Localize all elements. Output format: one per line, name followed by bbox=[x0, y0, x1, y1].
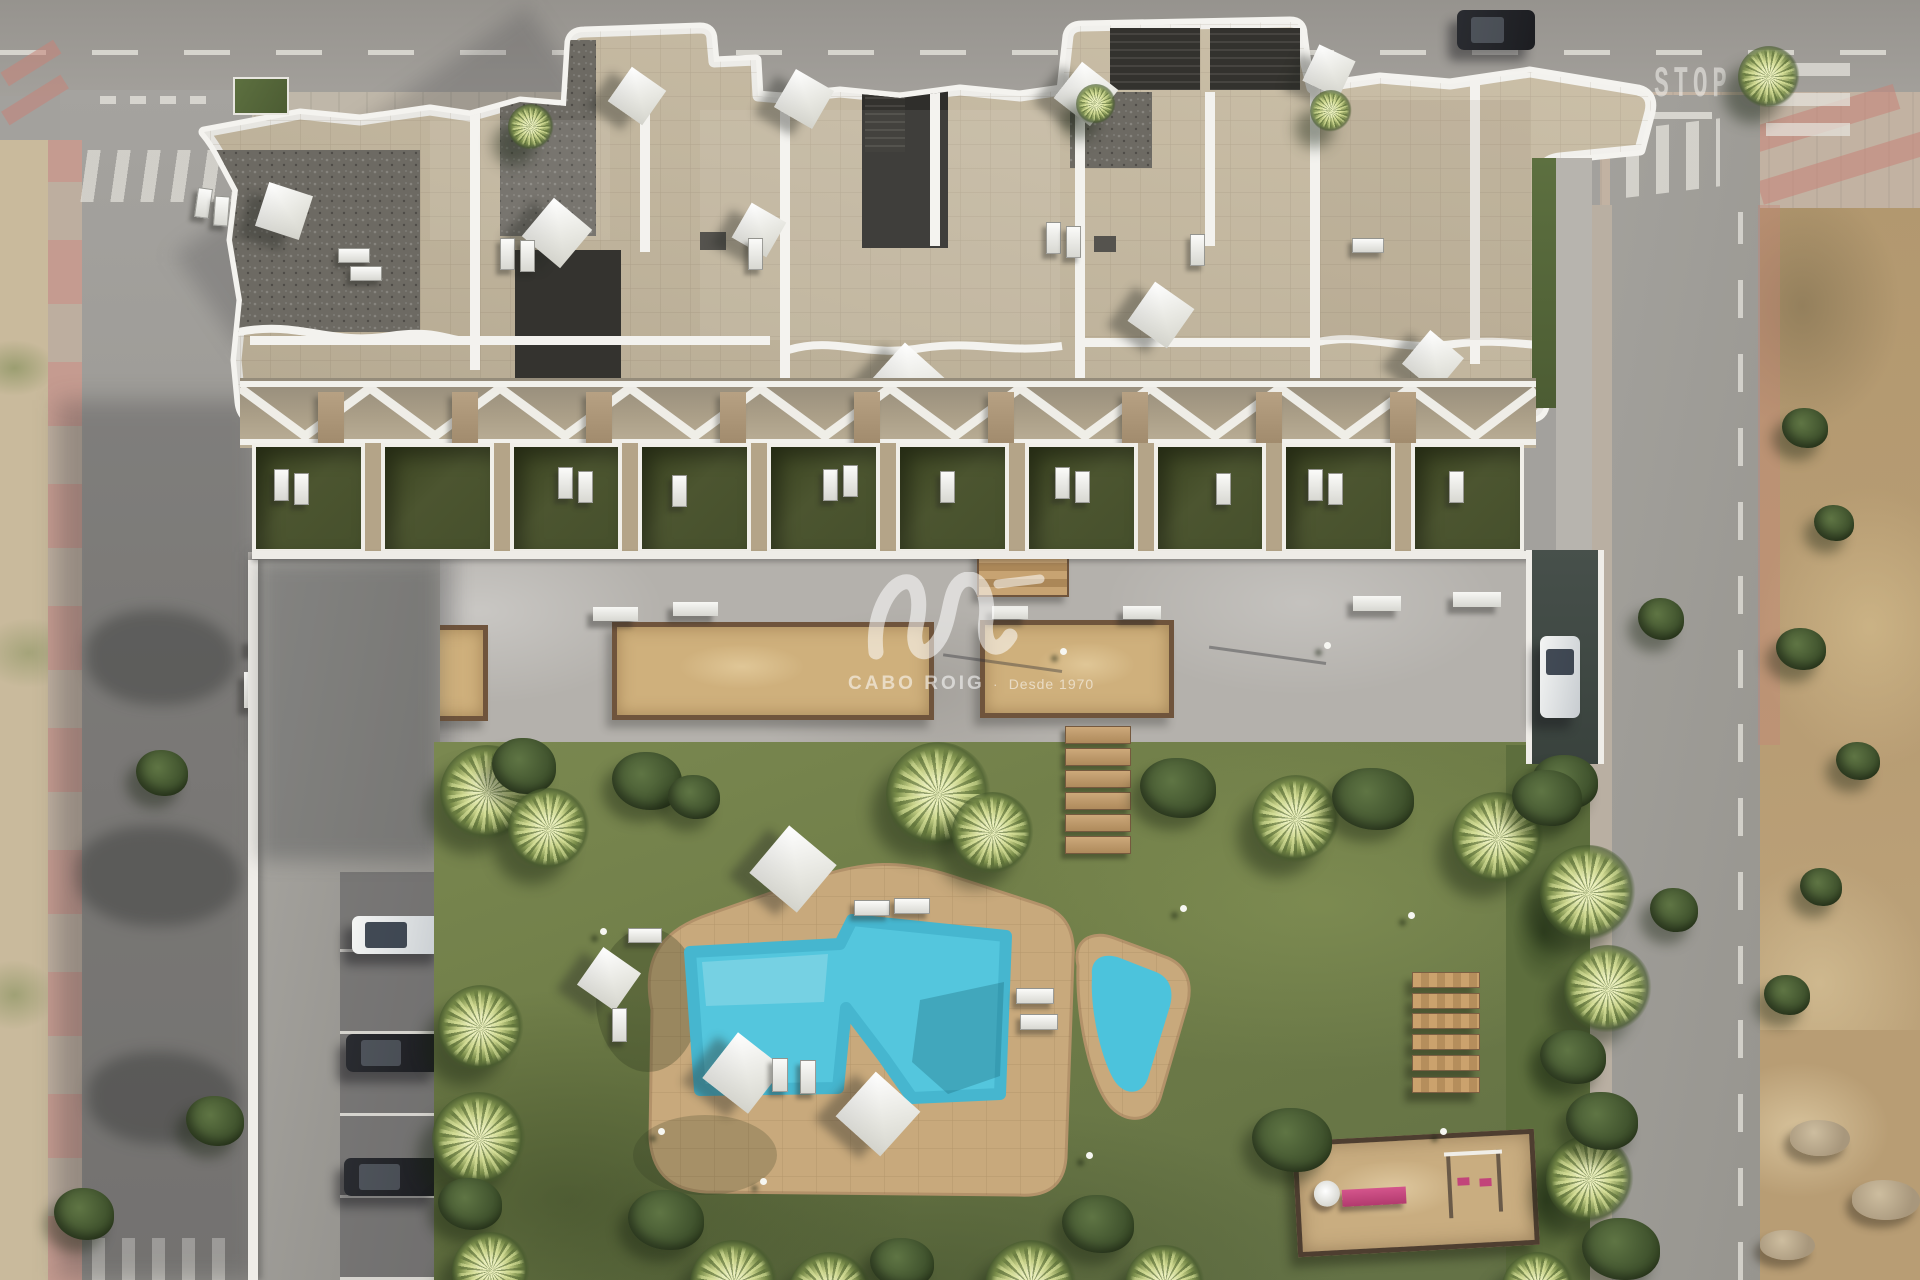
sun-lounger bbox=[772, 1058, 788, 1092]
plaza-bench bbox=[1123, 606, 1161, 619]
playground-slide bbox=[1342, 1187, 1407, 1207]
watermark: CABO ROIG · Desde 1970 bbox=[848, 572, 1098, 704]
shrub bbox=[668, 775, 720, 819]
plaza-bench bbox=[593, 607, 638, 621]
stone-pillar bbox=[318, 392, 344, 446]
building-shadow-on-road bbox=[58, 400, 258, 1280]
windshield bbox=[365, 922, 407, 948]
terrace-garden bbox=[1282, 443, 1395, 553]
watermark-text: CABO ROIG · Desde 1970 bbox=[848, 673, 1098, 695]
rock bbox=[1790, 1120, 1850, 1156]
parking-strip-shadow bbox=[258, 560, 440, 860]
palm-tree bbox=[952, 792, 1034, 874]
lawn-bench bbox=[1412, 1013, 1480, 1029]
plaza-bench bbox=[1353, 596, 1401, 611]
dirt-scrub bbox=[1836, 742, 1880, 780]
turf-strip-right bbox=[1532, 158, 1556, 408]
sun-lounger bbox=[1352, 238, 1384, 253]
road-right-dashed-line bbox=[1738, 212, 1743, 1280]
stone-pillar bbox=[452, 392, 478, 446]
terrace-garden bbox=[510, 443, 623, 553]
sun-lounger bbox=[350, 266, 382, 281]
lawn-bench bbox=[1412, 993, 1480, 1009]
rock bbox=[1852, 1180, 1920, 1220]
shrub bbox=[438, 1178, 502, 1230]
wooden-step bbox=[1065, 814, 1131, 832]
sun-lounger bbox=[1020, 1014, 1058, 1030]
sun-lounger bbox=[628, 928, 662, 943]
bollard-light bbox=[1408, 912, 1415, 919]
stone-pillar bbox=[1122, 392, 1148, 446]
playground-swing-frame bbox=[1446, 1156, 1453, 1218]
sun-lounger bbox=[800, 1060, 816, 1094]
watermark-separator: · bbox=[993, 677, 1000, 692]
roof-pergola-box bbox=[1210, 28, 1300, 90]
shrub bbox=[870, 1238, 934, 1280]
street-palm bbox=[1310, 90, 1352, 132]
parked-car-top-right bbox=[1457, 10, 1535, 50]
sun-lounger bbox=[1190, 234, 1205, 266]
bollard-light bbox=[1086, 1152, 1093, 1159]
concrete-right-of-building bbox=[1556, 158, 1592, 550]
palm-tree bbox=[508, 788, 590, 870]
sun-lounger bbox=[854, 900, 890, 916]
street-tree bbox=[1638, 598, 1684, 640]
terrace-garden bbox=[896, 443, 1009, 553]
street-palm bbox=[1738, 46, 1800, 108]
palm-tree bbox=[438, 985, 524, 1071]
dirt-scrub bbox=[1782, 408, 1828, 448]
street-tree bbox=[1650, 888, 1698, 932]
sun-lounger bbox=[612, 1008, 627, 1042]
wooden-step bbox=[1065, 792, 1131, 810]
rock bbox=[1760, 1230, 1815, 1260]
car-on-ramp bbox=[1540, 636, 1580, 718]
bollard-light bbox=[760, 1178, 767, 1185]
playground-swing-bar bbox=[1444, 1149, 1502, 1156]
sidewalk-pink-strip-right bbox=[1758, 205, 1780, 745]
roof-pergola-box bbox=[1110, 28, 1200, 90]
palm-tree bbox=[1546, 1135, 1634, 1223]
stone-pillar bbox=[586, 392, 612, 446]
sun-lounger bbox=[500, 238, 515, 270]
terrace-garden bbox=[381, 443, 494, 553]
terrace-garden bbox=[1411, 443, 1524, 553]
terrace-garden bbox=[1025, 443, 1138, 553]
terrace-garden bbox=[638, 443, 751, 553]
stone-pillar bbox=[854, 392, 880, 446]
sun-lounger bbox=[1046, 222, 1061, 254]
street-palm bbox=[1076, 84, 1116, 124]
terrace-garden bbox=[1154, 443, 1267, 553]
parked-car-white bbox=[352, 916, 444, 954]
wooden-step bbox=[1065, 748, 1131, 766]
palm-tree bbox=[432, 1092, 526, 1186]
watermark-tagline: Desde 1970 bbox=[1009, 676, 1095, 692]
aerial-site-render: STOP bbox=[0, 0, 1920, 1280]
bollard-light bbox=[1440, 1128, 1447, 1135]
sun-lounger bbox=[1066, 226, 1081, 258]
playground-swing-frame bbox=[1496, 1150, 1503, 1212]
watermark-logo bbox=[848, 572, 1098, 668]
parking-strip-wall bbox=[248, 560, 258, 1280]
palm-tree bbox=[1564, 945, 1652, 1033]
plaza-bench bbox=[673, 602, 718, 616]
parked-car-dark bbox=[344, 1158, 440, 1196]
plaza-bench bbox=[1453, 592, 1501, 607]
windshield bbox=[359, 1164, 399, 1190]
shrub bbox=[492, 738, 556, 794]
street-palm bbox=[508, 104, 554, 150]
playground-spinner bbox=[1313, 1180, 1340, 1207]
dirt-scrub bbox=[1776, 628, 1826, 670]
street-tree bbox=[136, 750, 188, 796]
palm-tree bbox=[1540, 845, 1636, 941]
sun-lounger bbox=[1016, 988, 1054, 1004]
turf-patch bbox=[233, 77, 289, 115]
sun-lounger bbox=[338, 248, 370, 263]
bollard-light bbox=[600, 928, 607, 935]
sidewalk-bush bbox=[186, 1096, 244, 1146]
lawn-bench bbox=[1412, 1055, 1480, 1071]
scrub-ground-left bbox=[0, 140, 48, 1280]
playground-swing-seat bbox=[1479, 1178, 1491, 1187]
lawn-bench bbox=[1412, 972, 1480, 988]
terrace-garden-row bbox=[252, 443, 1524, 553]
stone-pillar bbox=[720, 392, 746, 446]
stone-pillar bbox=[1256, 392, 1282, 446]
terrace-garden bbox=[767, 443, 880, 553]
windshield bbox=[1546, 649, 1574, 675]
sun-lounger bbox=[520, 240, 535, 272]
terrace-garden bbox=[252, 443, 365, 553]
wooden-step bbox=[1065, 726, 1131, 744]
windshield bbox=[1471, 17, 1504, 43]
palm-tree bbox=[1252, 775, 1340, 863]
parked-car-dark bbox=[346, 1034, 440, 1072]
lawn-bench bbox=[1412, 1077, 1480, 1093]
lawn-bench bbox=[1412, 1034, 1480, 1050]
sun-lounger bbox=[748, 238, 763, 270]
dirt-scrub bbox=[1764, 975, 1810, 1015]
stone-pillar bbox=[988, 392, 1014, 446]
pergola-strip bbox=[240, 378, 1536, 448]
stone-pillar bbox=[1390, 392, 1416, 446]
wooden-step bbox=[1065, 770, 1131, 788]
bollard-light bbox=[1180, 905, 1187, 912]
dirt-scrub bbox=[1800, 868, 1842, 906]
sun-lounger bbox=[894, 898, 930, 914]
lamp-head bbox=[1324, 642, 1331, 649]
terrace-front-wall bbox=[252, 551, 1534, 559]
sun-lounger bbox=[213, 196, 230, 227]
dirt-scrub bbox=[1814, 505, 1854, 541]
watermark-brand: CABO ROIG bbox=[848, 673, 985, 694]
sand-bush bbox=[54, 1188, 114, 1240]
bollard-light bbox=[658, 1128, 665, 1135]
playground-swing-seat bbox=[1457, 1177, 1469, 1186]
windshield bbox=[361, 1040, 401, 1066]
